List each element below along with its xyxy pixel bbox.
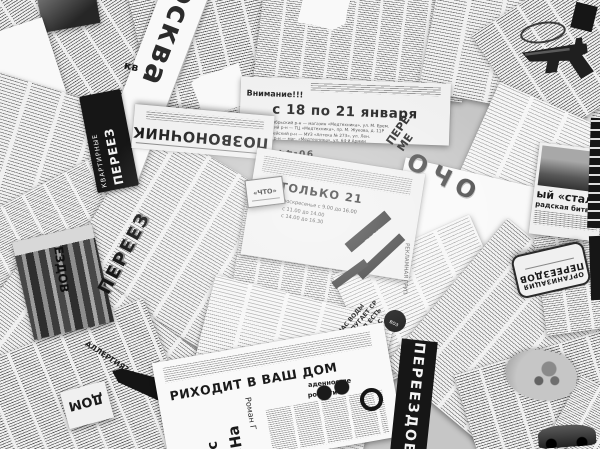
divider — [252, 197, 280, 201]
fine-print-lines — [311, 82, 441, 97]
na-vertical: «На — [220, 401, 247, 449]
revolver-icon — [517, 29, 600, 88]
scrap-chto-box: «ЧТО» — [244, 176, 285, 208]
dom-label: ДОМ — [67, 390, 105, 414]
revolver-photo — [517, 29, 600, 88]
black-edge-strip — [589, 236, 600, 300]
pereezdov-vertical-label: ПЕРЕЕЗДОВ — [400, 341, 427, 449]
roman-vertical: Роман Г — [243, 396, 262, 449]
newspaper-collage-photo: осква кв КВАРТИРНЫЕ ПЕРЕЕЗ Внимание!!! с… — [0, 0, 600, 449]
attention-label: Внимание!!! — [246, 89, 303, 100]
voz-label: воз — [388, 319, 399, 329]
chto-label: «ЧТО» — [253, 187, 277, 198]
ls-vertical: лс — [199, 411, 223, 449]
kv-fragment: кв — [123, 59, 140, 75]
